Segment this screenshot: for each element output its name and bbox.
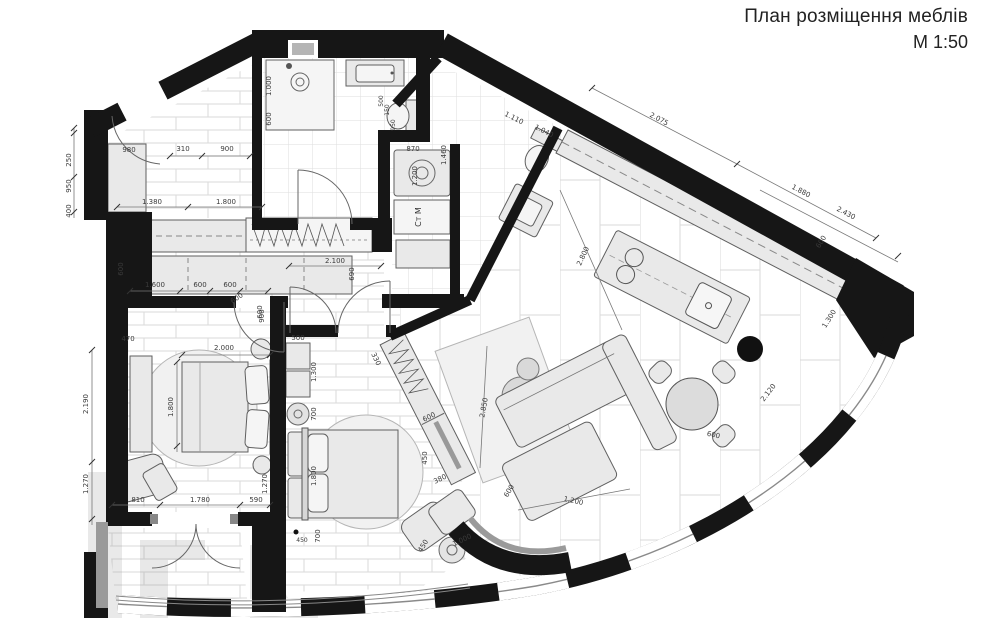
dim-hall-900: 900 (220, 145, 233, 153)
dim-laundry-1200: 1.200 (411, 166, 419, 186)
dim-left-2190: 2.190 (82, 394, 90, 414)
dim-kitchen-2430: 2.430 (835, 205, 856, 221)
nightstand-2 (253, 456, 271, 474)
dim-b1-900: 900 (258, 309, 266, 322)
dim-b2-700a: 700 (310, 407, 318, 420)
dim-b1-590: 590 (249, 496, 262, 504)
balcony-insulation (96, 522, 108, 608)
dim-b2-450: 450 (421, 451, 429, 464)
plan-scale: М 1:50 (744, 32, 968, 53)
vent-shaft (292, 43, 314, 55)
dim-kitchen-1880: 1.880 (790, 183, 811, 199)
dining-table (666, 378, 718, 430)
dim-laundry-870: 870 (406, 145, 419, 153)
wall-bath-bottom-1 (252, 218, 298, 230)
bed1 (182, 362, 248, 452)
dim-left-250: 250 (65, 153, 73, 166)
bedroom2-closet-1 (286, 343, 310, 369)
dim-left-1270: 1.270 (82, 474, 90, 494)
laundry-shelf (396, 240, 450, 268)
wall-bedroom2-top-stub (386, 325, 396, 337)
title-block: План розміщення меблів М 1:50 (744, 6, 968, 53)
speaker (287, 403, 309, 425)
dim-corridor-2100: 2.100 (325, 257, 345, 265)
dim-shower-1000: 1.000 (265, 76, 273, 96)
entry-cabinet (108, 144, 146, 212)
dim-row-600b: 600 (223, 281, 236, 289)
pouf-small (517, 358, 539, 380)
column (737, 336, 763, 362)
vanity-basin (356, 65, 394, 82)
dim-b2-700b: 700 (314, 529, 322, 542)
plan-title: План розміщення меблів (744, 6, 968, 28)
dim-b1-1270: 1.270 (261, 474, 269, 494)
dim-b1-470: 470 (121, 335, 134, 343)
bedroom2-closet-2 (286, 371, 310, 397)
wall-bath-divider (252, 56, 262, 226)
dim-b2-1300: 1.300 (310, 362, 318, 382)
dim-b2-socket450: 450 (296, 537, 308, 544)
dim-hall-1800: 1.800 (216, 198, 236, 206)
dim-b1-810: 810 (131, 496, 144, 504)
dim-shower-600: 600 (265, 112, 273, 125)
door-jamb-2 (230, 514, 238, 524)
dim-left-950: 950 (65, 179, 73, 192)
faucet-icon (391, 72, 394, 75)
floor-plan-canvas: План розміщення меблів М 1:50 (0, 0, 1000, 618)
dim-hall-v600: 600 (117, 262, 125, 275)
wall-laundry-left (378, 142, 390, 230)
washing-machine-label: Ст М (414, 207, 423, 227)
wall-laundry-right (450, 144, 460, 294)
dim-row-600a: 600 (193, 281, 206, 289)
wall-balcony-partition-1 (106, 512, 152, 526)
dim-b2-500: 500 (291, 334, 304, 342)
bed1-pillow-2 (245, 409, 270, 448)
dim-hall-690: 690 (348, 267, 356, 280)
dim-row-1600: 1.600 (145, 281, 165, 289)
wall-laundry-bottom (382, 294, 464, 308)
bed2-headboard (302, 428, 308, 520)
dim-laundry-1460: 1.460 (440, 145, 448, 165)
floor-plan: 970 (0, 0, 1000, 618)
shower-tray (266, 60, 334, 130)
dim-b1-2000: 2.000 (214, 344, 234, 352)
bedroom1-dresser (130, 356, 152, 452)
wall-top (252, 30, 444, 58)
socket-icon (294, 530, 299, 535)
dim-b2-1800: 1.800 (310, 466, 318, 486)
door-jamb-1 (150, 514, 158, 524)
dim-wc-150: 150 (384, 104, 391, 116)
dim-hall-cabinet: 980 (122, 146, 135, 154)
wall-balcony-divider (252, 512, 286, 612)
dim-b1-1780: 1.780 (190, 496, 210, 504)
wall-bedroom1-top (106, 296, 236, 308)
dim-wc-950: 950 (390, 119, 397, 131)
bed1-pillow-1 (245, 365, 270, 404)
dim-kitchen-2075: 2.075 (648, 111, 669, 127)
dim-left-400: 400 (65, 204, 73, 217)
wardrobe-end-cap (372, 218, 392, 252)
wall-balcony-partition-2 (238, 512, 252, 526)
dim-b1-1800: 1.800 (167, 397, 175, 417)
wall-toilet-niche-2 (378, 130, 430, 142)
shower-head-icon (286, 63, 292, 69)
dim-hall-310: 310 (176, 145, 189, 153)
dim-hall-1380: 1.380 (142, 198, 162, 206)
